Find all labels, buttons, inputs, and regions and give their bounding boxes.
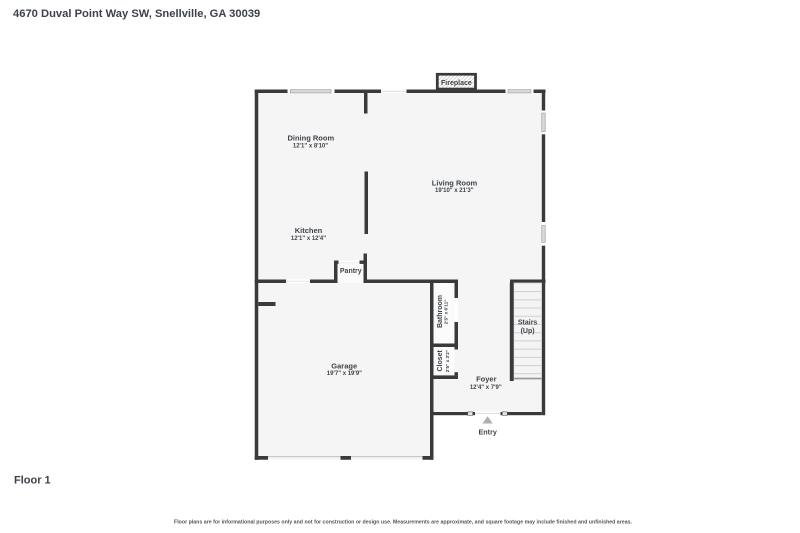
svg-text:Floor 1: Floor 1 [14, 475, 51, 487]
svg-text:4670 Duval Point Way SW, Snell: 4670 Duval Point Way SW, Snellville, GA … [13, 8, 260, 20]
svg-text:12'1" x 8'10": 12'1" x 8'10" [293, 143, 328, 149]
svg-text:Living Room: Living Room [432, 178, 478, 187]
svg-text:Floor plans are for informatio: Floor plans are for informational purpos… [174, 520, 633, 526]
svg-text:Closet: Closet [437, 349, 444, 371]
svg-text:(Up): (Up) [521, 328, 535, 335]
svg-text:Entry: Entry [479, 428, 497, 437]
svg-text:12'1" x 12'4": 12'1" x 12'4" [291, 236, 326, 242]
svg-text:2'5" x 6'11": 2'5" x 6'11" [444, 300, 449, 325]
svg-text:Garage: Garage [331, 362, 357, 371]
svg-text:Foyer: Foyer [476, 375, 497, 384]
svg-text:Fireplace: Fireplace [441, 80, 472, 87]
svg-text:Dining Room: Dining Room [287, 133, 334, 142]
svg-text:Kitchen: Kitchen [295, 226, 323, 235]
svg-text:Pantry: Pantry [340, 268, 362, 275]
svg-text:19'7" x 19'9": 19'7" x 19'9" [327, 371, 362, 377]
svg-text:12'4" x 7'9": 12'4" x 7'9" [470, 385, 502, 391]
svg-text:2'5" x 3'2": 2'5" x 3'2" [445, 350, 450, 372]
svg-text:19'10" x 21'3": 19'10" x 21'3" [435, 188, 474, 194]
svg-text:Stairs: Stairs [518, 319, 538, 326]
